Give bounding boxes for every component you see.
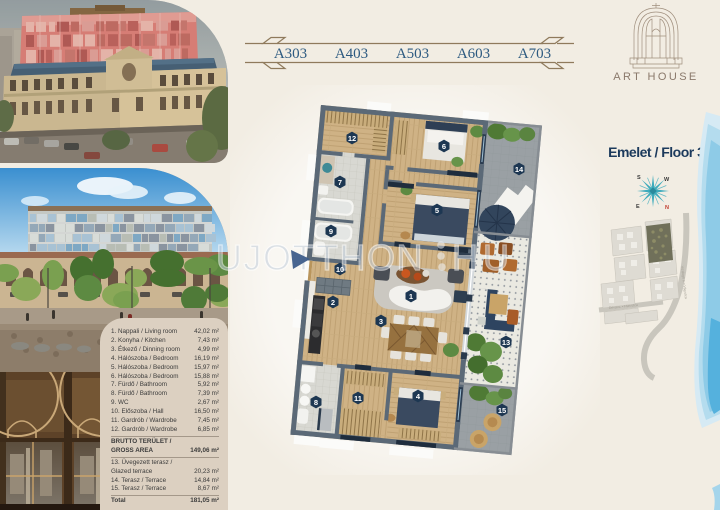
svg-text:15: 15 xyxy=(498,406,506,415)
svg-text:9: 9 xyxy=(329,227,333,236)
svg-text:6: 6 xyxy=(442,142,446,151)
svg-text:14: 14 xyxy=(515,165,524,174)
svg-text:HU: HU xyxy=(452,237,514,278)
svg-text:UJOTTHON: UJOTTHON xyxy=(216,237,424,278)
svg-text:8: 8 xyxy=(314,398,318,407)
svg-text:13: 13 xyxy=(502,338,510,347)
svg-text:11: 11 xyxy=(354,394,362,403)
svg-text:7: 7 xyxy=(338,178,342,187)
svg-text:5: 5 xyxy=(435,206,439,215)
svg-text:3: 3 xyxy=(379,317,383,326)
svg-text:12: 12 xyxy=(348,134,356,143)
svg-text:2: 2 xyxy=(331,298,335,307)
svg-text:1: 1 xyxy=(409,292,413,301)
